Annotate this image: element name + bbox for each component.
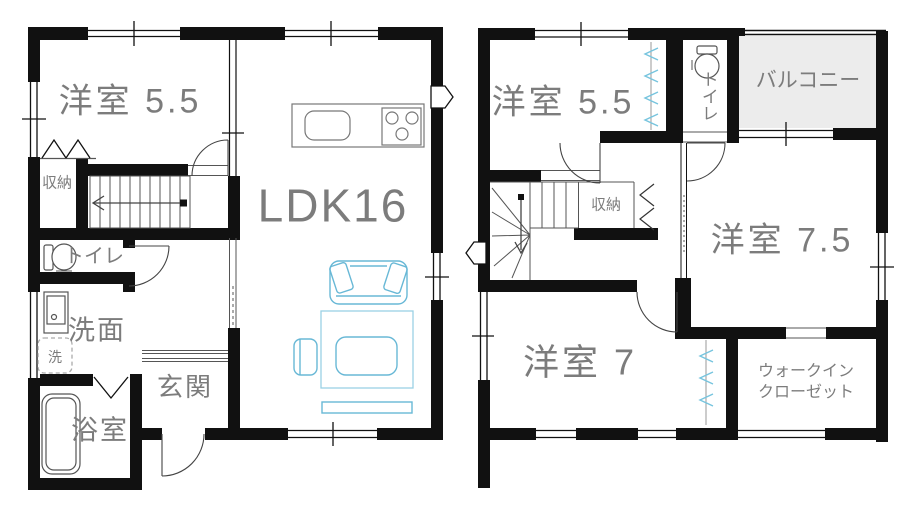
chair-icon bbox=[294, 339, 317, 375]
kitchen-sink bbox=[305, 111, 350, 140]
floor2-closet-bifold-doors bbox=[640, 184, 654, 230]
washbasin-icon bbox=[44, 292, 68, 333]
floorplan-canvas: 洋室 5.5 LDK16 収納 トイレ 洗面 洗 浴室 玄関 洋室 5.5 トイ… bbox=[0, 0, 916, 513]
room-label-western-room-small-2f: 洋室 5.5 bbox=[492, 83, 635, 122]
room-label-washroom: 洗面 bbox=[68, 315, 126, 346]
label-washing-machine: 洗 bbox=[48, 349, 62, 365]
room-label-toilet-1f: トイレ bbox=[64, 246, 124, 269]
table-icon bbox=[336, 337, 397, 375]
room-label-western-room-1f: 洋室 5.5 bbox=[59, 82, 202, 121]
floor1-partitions bbox=[222, 40, 244, 176]
floor1-closet-bifold-doors bbox=[40, 140, 96, 159]
floor1-entrance-step-lines bbox=[142, 166, 228, 362]
room-label-western-room-large-2f: 洋室 7.5 bbox=[711, 221, 854, 260]
kitchen-counter bbox=[292, 104, 424, 147]
ldk-furniture bbox=[294, 261, 413, 413]
room-label-balcony: バルコニー bbox=[756, 69, 861, 93]
floor2-stairs bbox=[492, 182, 578, 280]
sofa-icon bbox=[329, 261, 408, 304]
room-label-ldk: LDK16 bbox=[258, 180, 409, 233]
room-label-entrance: 玄関 bbox=[157, 373, 213, 403]
floor1-bathroom-folding-door bbox=[94, 377, 128, 398]
floor1-stairs bbox=[90, 176, 190, 228]
wall-vent-icon-2f bbox=[466, 242, 486, 264]
kitchen-vent-icon bbox=[431, 86, 453, 108]
room-label-western-room-mid-2f: 洋室 7 bbox=[523, 341, 637, 382]
room-label-closet-2f: 収納 bbox=[591, 196, 621, 213]
tv-board-icon bbox=[322, 402, 412, 413]
room-label-closet-1f: 収納 bbox=[42, 174, 72, 191]
floor1-sliding-door bbox=[230, 238, 237, 328]
rug-icon bbox=[321, 311, 413, 388]
room-label-bathroom: 浴室 bbox=[71, 415, 129, 446]
room-label-wic-line1: ウォークイン bbox=[758, 363, 854, 381]
room-label-wic-line2: クローゼット bbox=[758, 384, 854, 402]
room-label-toilet-2f: トイレ bbox=[698, 71, 718, 122]
floor1-door-arcs bbox=[129, 140, 228, 476]
